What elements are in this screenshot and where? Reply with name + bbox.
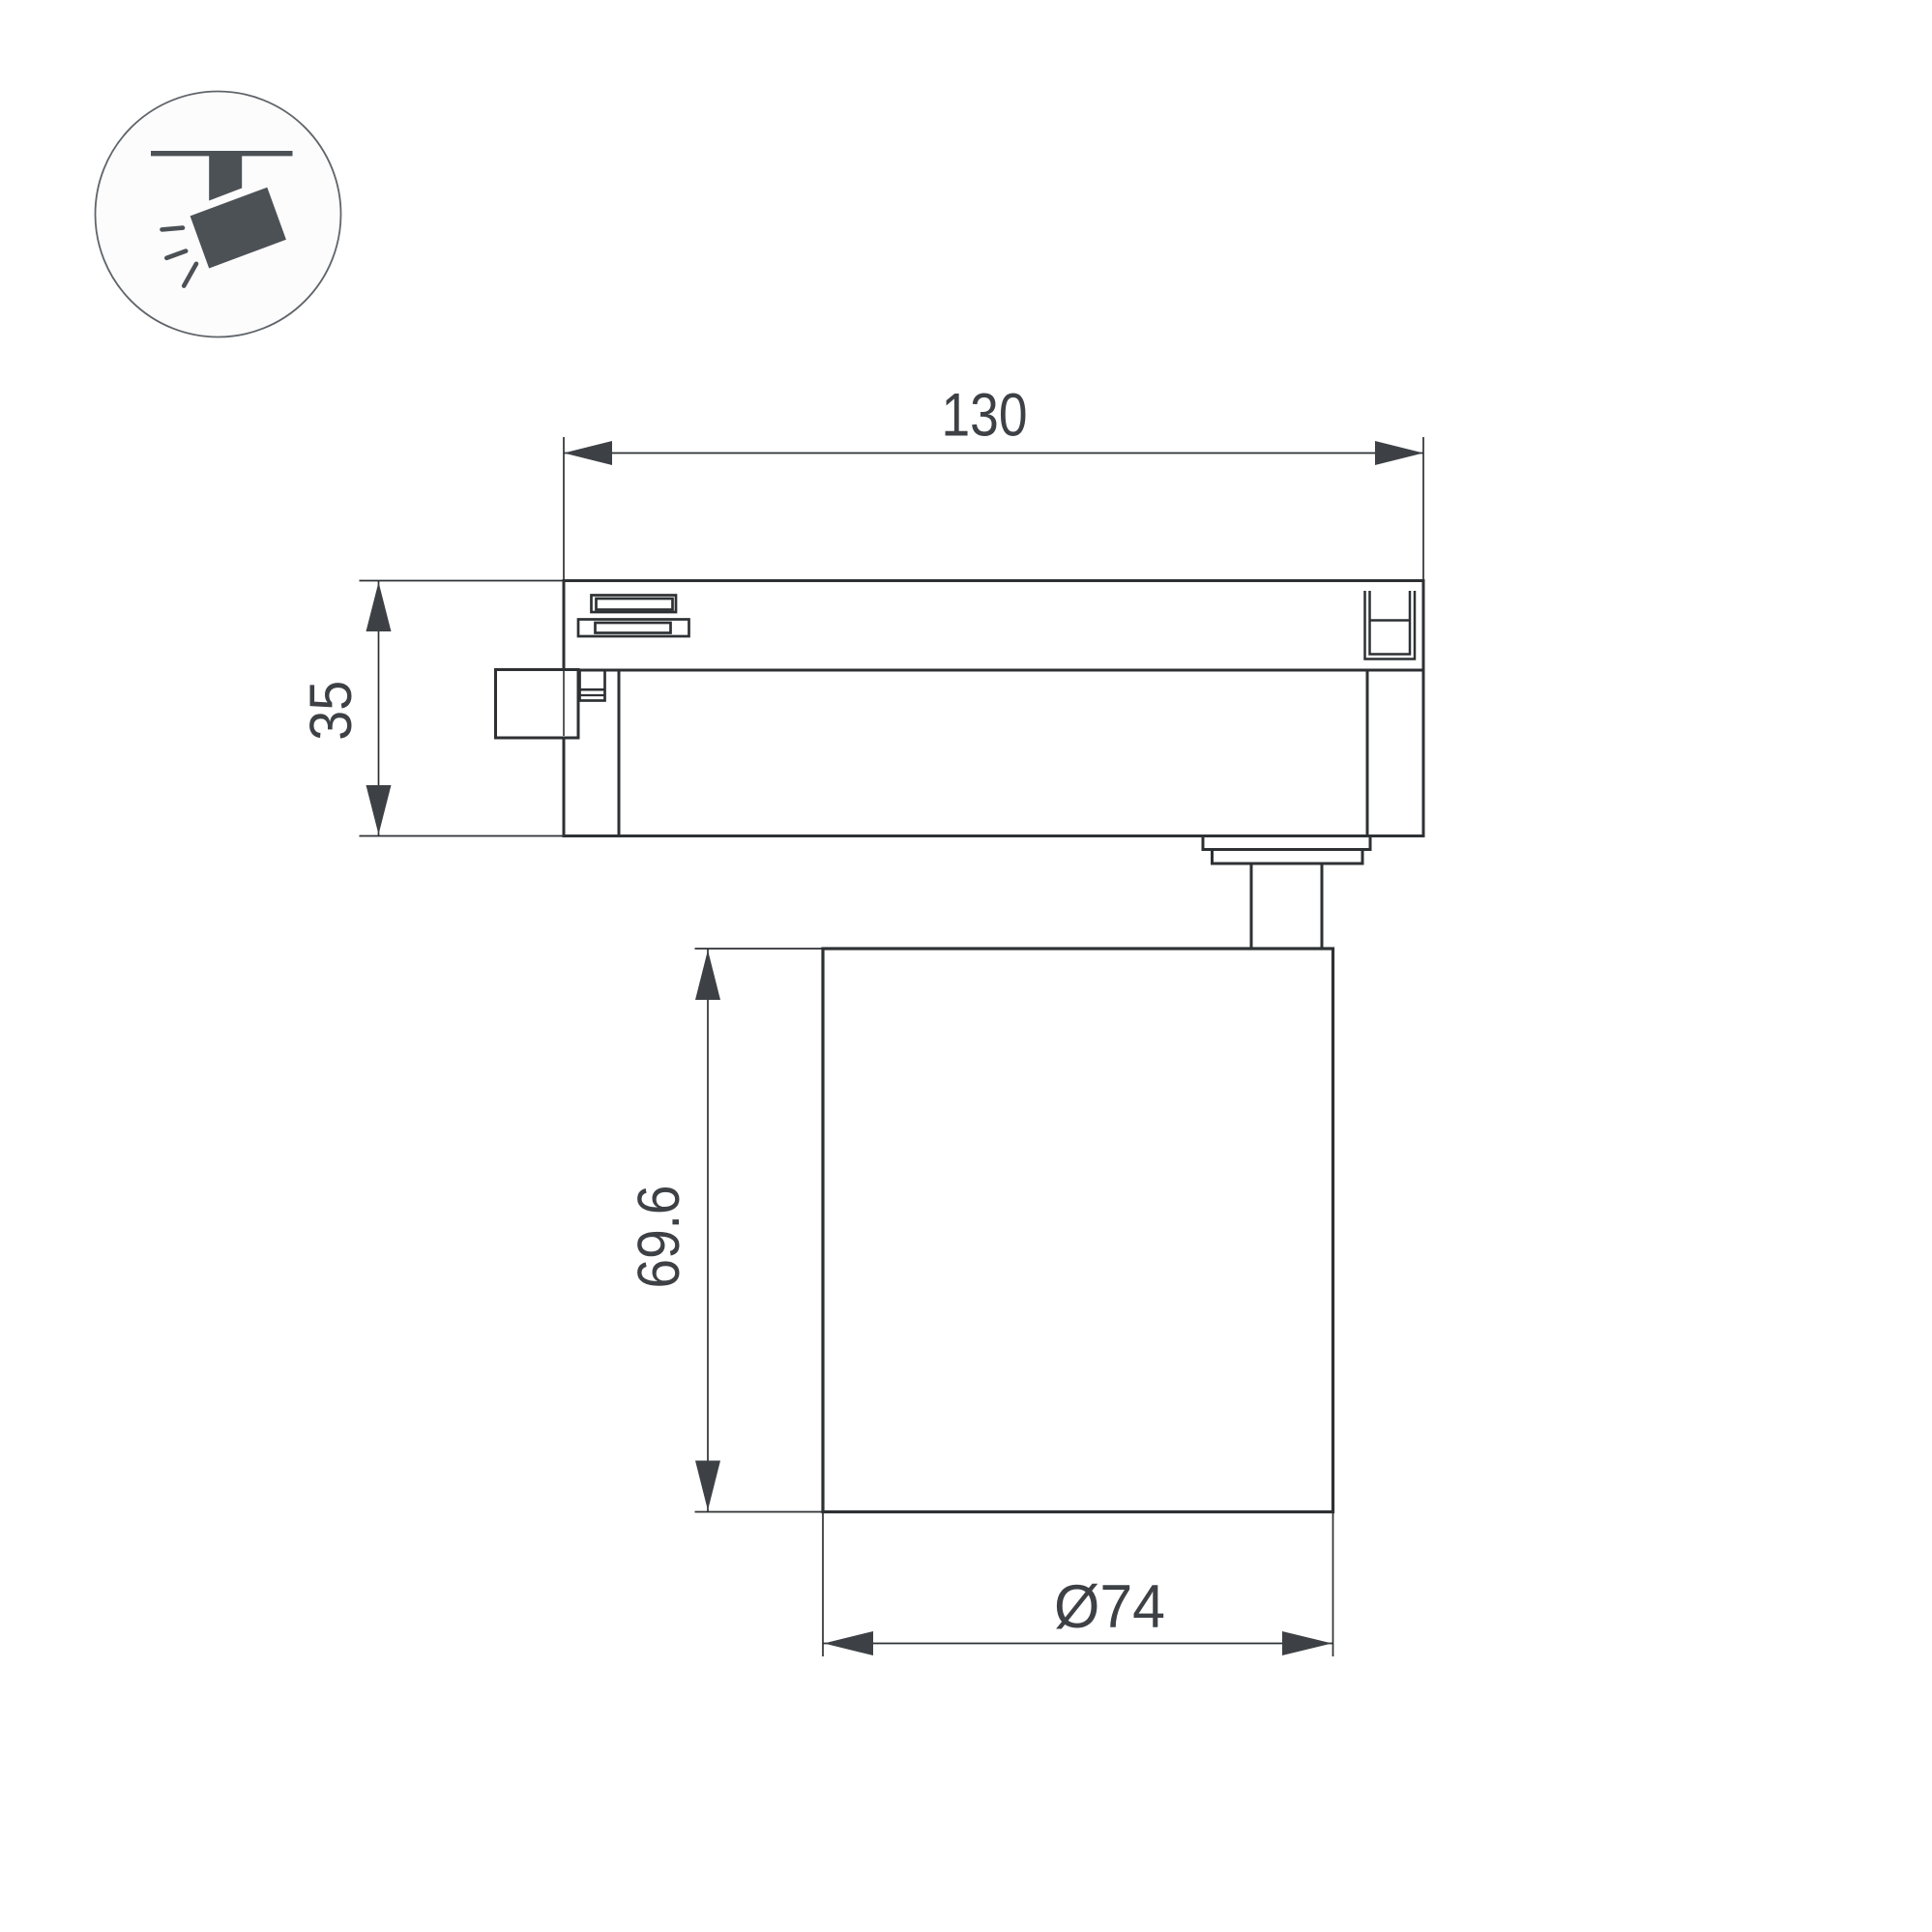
svg-text:35: 35 <box>298 681 365 741</box>
svg-text:69.6: 69.6 <box>626 1186 692 1289</box>
svg-text:Ø74: Ø74 <box>1054 1573 1165 1641</box>
svg-text:130: 130 <box>942 382 1028 450</box>
